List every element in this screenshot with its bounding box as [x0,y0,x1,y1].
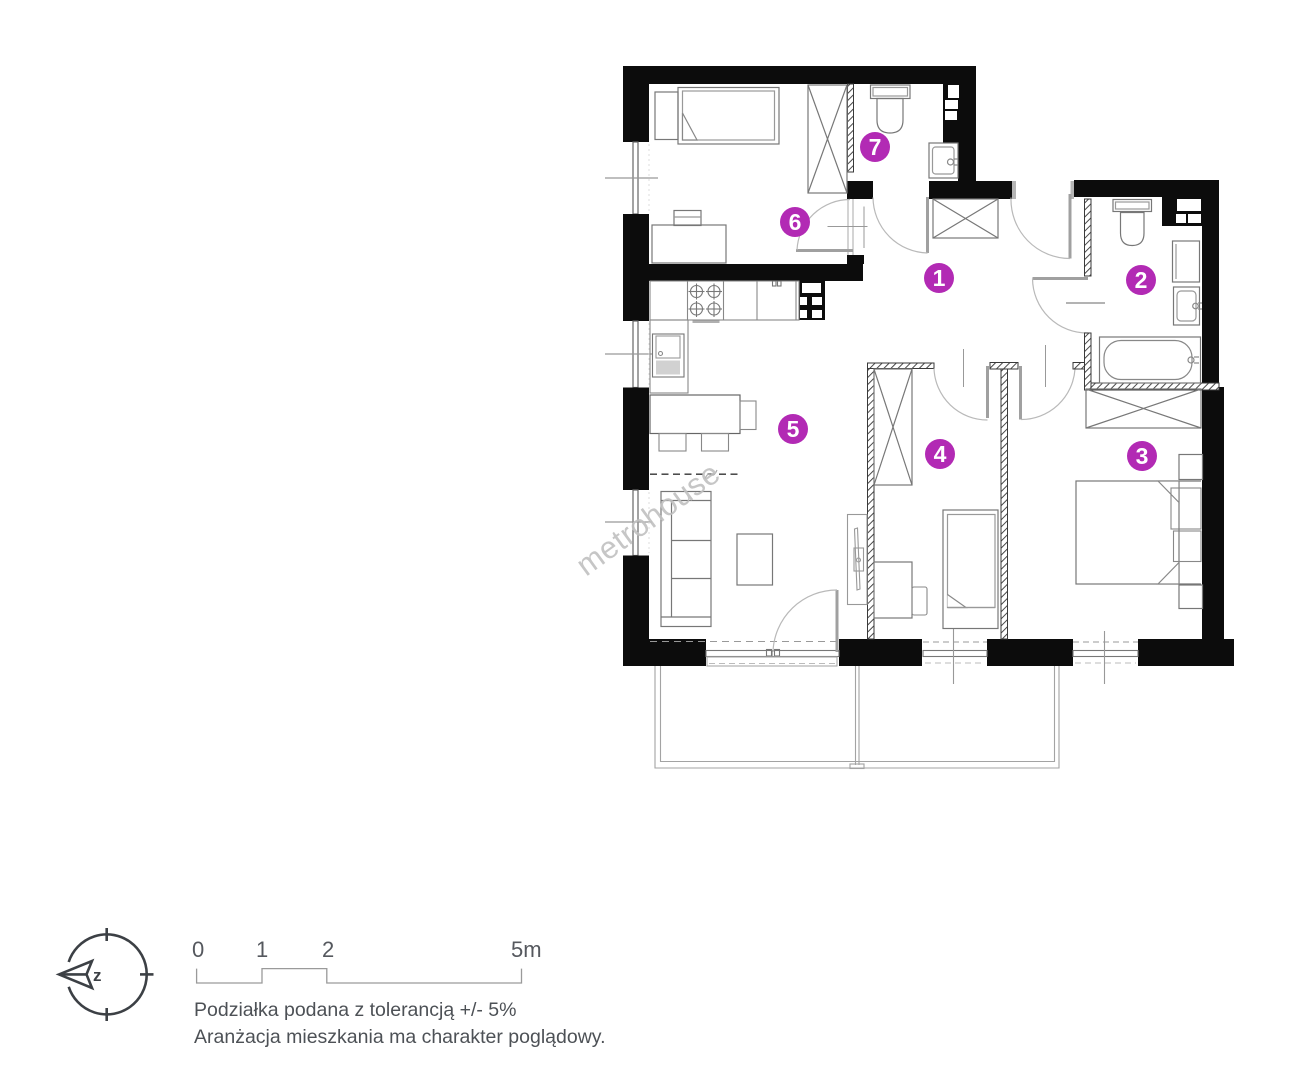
svg-text:7: 7 [869,134,882,160]
svg-text:5m: 5m [511,937,542,962]
svg-text:1: 1 [256,937,268,962]
svg-text:z: z [93,966,102,985]
svg-text:Aranżacja mieszkania ma charak: Aranżacja mieszkania ma charakter pogląd… [194,1026,606,1048]
svg-text:2: 2 [322,937,334,962]
svg-text:3: 3 [1136,443,1149,469]
svg-text:Podziałka podana z tolerancją: Podziałka podana z tolerancją +/- 5% [194,999,517,1021]
svg-text:0: 0 [192,937,204,962]
svg-text:1: 1 [933,265,946,291]
svg-text:5: 5 [787,416,800,442]
svg-text:6: 6 [789,209,802,235]
svg-text:2: 2 [1135,267,1148,293]
svg-text:4: 4 [934,441,947,467]
